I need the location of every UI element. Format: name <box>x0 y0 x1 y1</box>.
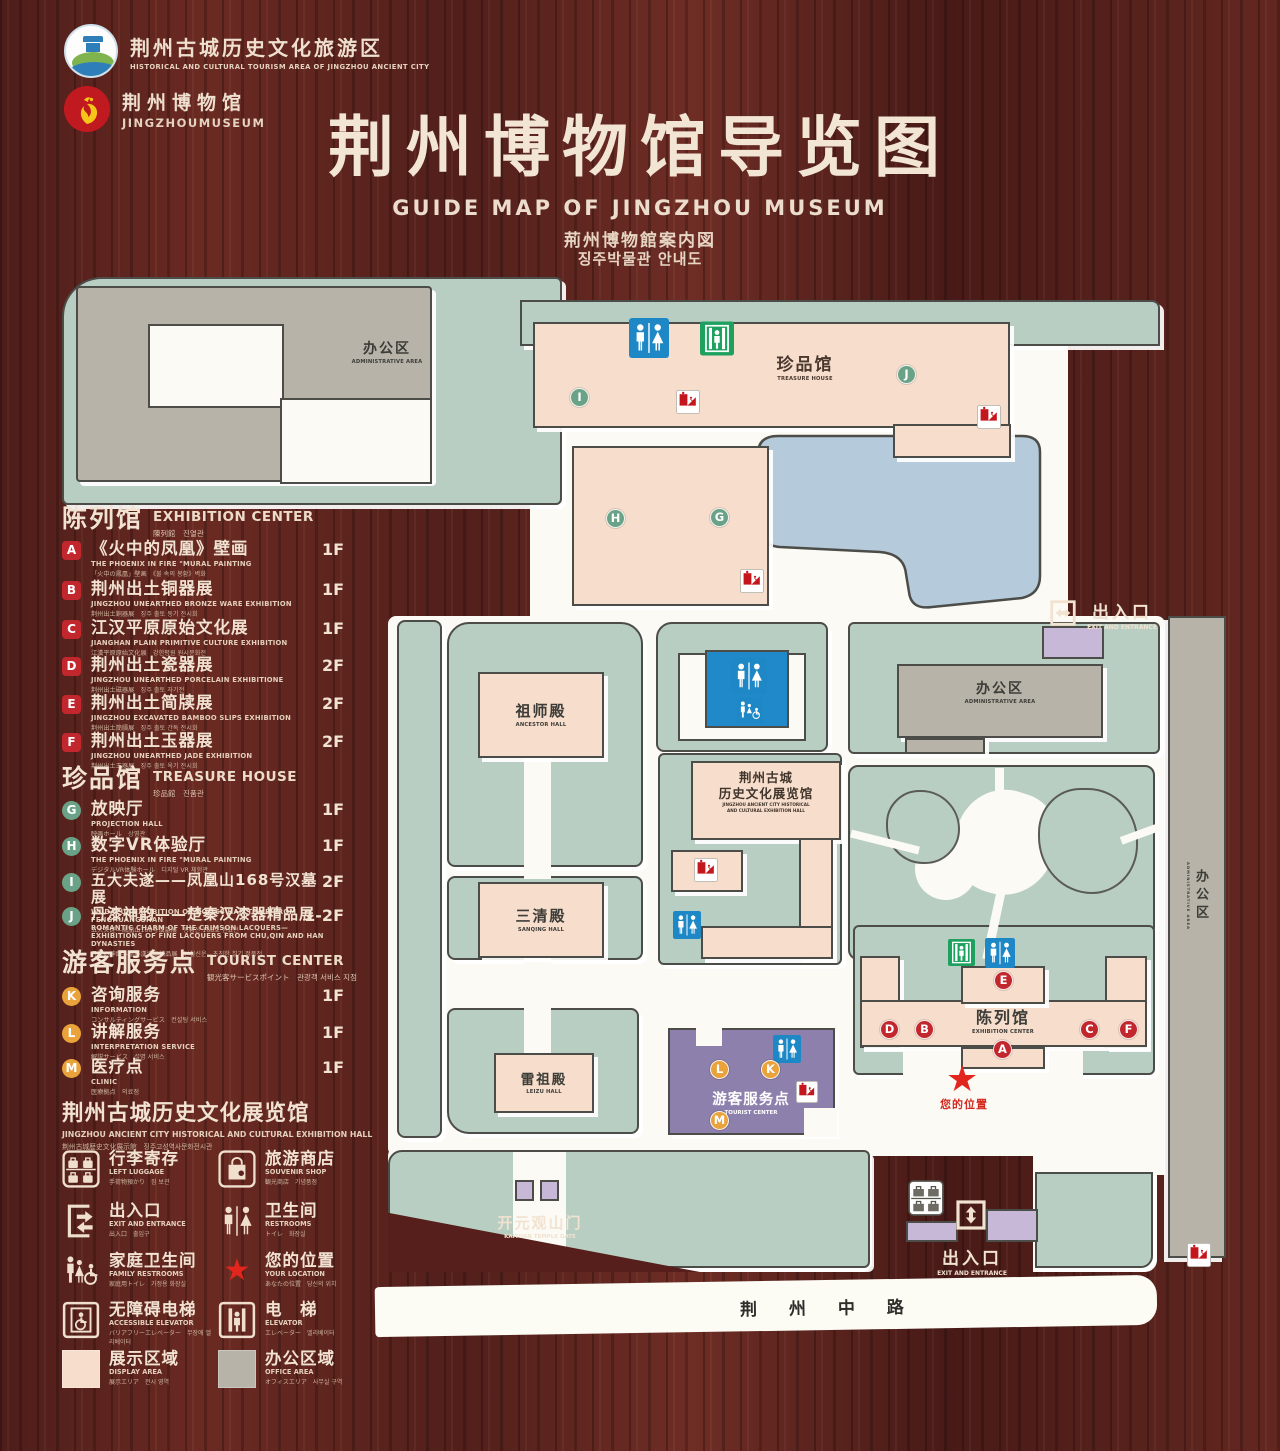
legend-item-K: K 咨询服务INFORMATIONコンサルティングサービス 컨설팅 서비스 1F <box>62 986 362 1024</box>
legend-item-E: E 荆州出土简牍展JINGZHOU EXCAVATED BAMBOO SLIPS… <box>62 694 362 732</box>
map-marker-H: H <box>606 509 625 528</box>
page-subtitle-ko: 징주박물관 안내도 <box>0 248 1280 269</box>
sanqing-hall-label: 三清殿SANQING HALL <box>480 905 602 933</box>
road-jingzhou-middle: 荆 州 中 路 <box>375 1275 1158 1337</box>
map-marker-K: K <box>761 1060 780 1079</box>
legend-elevator: 电 梯ELEVATORエレベーター 엘리베이터 <box>218 1301 368 1339</box>
temple-axis-path <box>524 757 551 879</box>
map-marker-J: J <box>897 365 916 384</box>
legend-item-G: G 放映厅PROJECTION HALL映画ホール 상영관 1F <box>62 800 362 838</box>
marker-C: C <box>62 620 81 639</box>
escalator-icon <box>977 405 1001 429</box>
legend-your-location: ★ 您的位置YOUR LOCATIONあなたの位置 당신의 위치 <box>218 1252 368 1290</box>
page-subtitle-en: GUIDE MAP OF JINGZHOU MUSEUM <box>0 196 1280 220</box>
map-marker-E: E <box>994 971 1013 990</box>
accessible-elevator-icon <box>62 1301 100 1339</box>
gate-pillar <box>540 1180 559 1201</box>
elevator-icon <box>218 1301 256 1339</box>
tourism-area-logo: 荆州古城历史文化旅游区 HISTORICAL AND CULTURAL TOUR… <box>64 24 429 78</box>
tourism-area-logo-zh: 荆州古城历史文化旅游区 <box>130 32 429 61</box>
elevator-icon <box>700 319 734 358</box>
family-restroom-icon <box>62 1252 100 1290</box>
legend-section-exhibition-center: 陈列馆 EXHIBITION CENTER 陳列館 진열관 <box>62 506 372 539</box>
floor-badge: 1F <box>322 580 344 599</box>
escalator-icon <box>676 390 700 414</box>
lake <box>750 428 1050 628</box>
admin-strip-label: 办公区 ADMINISTRATIVE AREA <box>1186 862 1210 930</box>
map-marker-F: F <box>1119 1020 1138 1039</box>
exit-northeast-label: 出入口EXIT AND ENTRANCE <box>1082 598 1162 631</box>
legend-family-restrooms: 家庭卫生间FAMILY RESTROOMS家庭用トイレ 가정용 화장실 <box>62 1252 212 1290</box>
guide-map-poster: { "header": { "logo1": {"zh": "荆州古城历史文化旅… <box>0 0 1280 1451</box>
display-area-swatch <box>62 1350 100 1388</box>
grounds-southeast-block <box>1035 1172 1153 1268</box>
floor-badge: 1F <box>322 1023 344 1042</box>
ancestor-hall-label: 祖师殿ANCESTOR HALL <box>480 700 602 728</box>
legend-section-tourist-center: 游客服务点 TOURIST CENTER 観光客サービスポイント 관광객 서비스… <box>62 950 372 983</box>
exit-south-label: 出入口EXIT AND ENTRANCE <box>917 1244 1027 1277</box>
marker-D: D <box>62 657 81 676</box>
admin-northwest-label: 办公区ADMINISTRATIVE AREA <box>322 338 452 365</box>
restroom-icon <box>628 318 670 358</box>
floor-badge: 1F <box>322 540 344 559</box>
marker-E: E <box>62 695 81 714</box>
your-location-label: 您的位置 <box>930 1096 998 1112</box>
escalator-icon <box>694 858 718 882</box>
building-admin-east-tab <box>905 738 985 754</box>
floor-badge: 2F <box>322 872 344 891</box>
restroom-icon <box>773 1035 801 1063</box>
road-label: 荆 州 中 路 <box>740 1293 900 1321</box>
exit-entrance-icon <box>1050 600 1076 626</box>
building-admin-strip <box>1168 616 1226 1258</box>
map-marker-M: M <box>710 1111 729 1130</box>
legend-souvenir-shop: 旅游商店SOUVENIR SHOP観光商店 기념품점 <box>218 1150 368 1188</box>
escalator-icon <box>796 1081 818 1103</box>
left-luggage-icon <box>908 1180 944 1216</box>
left-luggage-icon <box>62 1150 100 1188</box>
floor-badge: 1F <box>322 619 344 638</box>
building-jz-hall-south-bar <box>701 926 833 959</box>
map-marker-L: L <box>710 1060 729 1079</box>
legend-item-D: D 荆州出土瓷器展JINGZHOU UNEARTHED PORCELAIN EX… <box>62 656 362 694</box>
floor-badge: 1F <box>322 800 344 819</box>
restroom-icon <box>731 658 767 694</box>
leizu-hall-label: 雷祖殿LEIZU HALL <box>490 1068 598 1095</box>
your-location-star-icon: ★ <box>946 1062 978 1098</box>
floor-badge: 1F <box>322 1058 344 1077</box>
courtyard <box>696 1026 722 1046</box>
souvenir-shop-icon <box>218 1150 256 1188</box>
tourism-area-logo-icon <box>64 24 118 78</box>
grounds-west-strip <box>397 620 442 1138</box>
exit-entrance-icon <box>956 1200 986 1230</box>
restroom-icon <box>218 1202 256 1240</box>
temple-axis-path <box>524 956 551 1012</box>
map-marker-I: I <box>570 388 589 407</box>
floor-badge: 1F <box>322 836 344 855</box>
escalator-icon <box>1187 1243 1211 1267</box>
garden-path <box>995 768 1004 798</box>
restroom-icon <box>985 938 1015 968</box>
floor-badge: 2F <box>322 732 344 751</box>
marker-I: I <box>62 873 81 892</box>
marker-L: L <box>62 1024 81 1043</box>
elevator-icon <box>948 938 975 967</box>
legend-item-H: H 数字VR体验厅THE PHOENIX IN FIRE "MURAL PAIN… <box>62 836 362 874</box>
building-treasure-house-wing-east <box>893 424 1011 458</box>
legend-item-B: B 荆州出土铜器展JINGZHOU UNEARTHED BRONZE WARE … <box>62 580 362 618</box>
legend-accessible-elevator: 无障碍电梯ACCESSIBLE ELEVATORバリアフリーエレベーター 무장애… <box>62 1301 212 1346</box>
map-marker-G: G <box>710 508 729 527</box>
jz-hall-label: 荆州古城 历史文化展览馆 JINGZHOU ANCIENT CITY HISTO… <box>693 770 839 813</box>
building-gatehouse-south-east <box>986 1209 1038 1242</box>
admin-east-label: 办公区ADMINISTRATIVE AREA <box>940 678 1060 705</box>
courtyard <box>280 398 432 484</box>
legend-hall-note: 荆州古城历史文化展览馆 JINGZHOU ANCIENT CITY HISTOR… <box>62 1096 392 1151</box>
office-area-swatch <box>218 1350 256 1388</box>
legend-left-luggage: 行李寄存LEFT LUGGAGE手荷物預かり 짐 보관 <box>62 1150 212 1188</box>
page-title: 荆州博物馆导览图 <box>0 94 1280 190</box>
family-restroom-icon <box>737 697 763 723</box>
floor-badge: 1-2F <box>304 906 344 925</box>
legend-display-area: 展示区域DISPLAY AREA展示エリア 전시 영역 <box>62 1350 212 1388</box>
marker-F: F <box>62 733 81 752</box>
courtyard <box>148 324 284 408</box>
exit-entrance-icon <box>62 1202 100 1240</box>
marker-M: M <box>62 1059 81 1078</box>
treasure-house-label: 珍品馆TREASURE HOUSE <box>740 350 870 382</box>
legend-item-L: L 讲解服务INTERPRETATION SERVICE解説サービス 설명 서비… <box>62 1023 362 1061</box>
map-marker-A: A <box>993 1040 1012 1059</box>
garden-island-west <box>886 790 960 864</box>
escalator-icon <box>740 569 764 593</box>
floor-badge: 2F <box>322 694 344 713</box>
map-marker-C: C <box>1080 1020 1099 1039</box>
legend-exit-entrance: 出入口EXIT AND ENTRANCE出入口 출입구 <box>62 1202 212 1240</box>
map-marker-B: B <box>915 1020 934 1039</box>
legend-office-area: 办公区域OFFICE AREAオフィスエリア 사무실 구역 <box>218 1350 368 1388</box>
tourism-area-logo-en: HISTORICAL AND CULTURAL TOURISM AREA OF … <box>130 63 429 71</box>
legend-item-A: A 《火中的凤凰》壁画THE PHOENIX IN FIRE "MURAL PA… <box>62 540 362 578</box>
marker-B: B <box>62 581 81 600</box>
restroom-icon <box>673 908 701 942</box>
marker-G: G <box>62 801 81 820</box>
legend-restrooms: 卫生间RESTROOMSトイレ 화장실 <box>218 1202 368 1240</box>
legend-item-C: C 江汉平原原始文化展JIANGHAN PLAIN PRIMITIVE CULT… <box>62 619 362 657</box>
marker-K: K <box>62 987 81 1006</box>
legend-item-M: M 医疗点CLINIC医療拠点 의료점 1F <box>62 1058 362 1096</box>
legend-section-treasure-house: 珍品馆 TREASURE HOUSE 珍品館 진품관 <box>62 766 372 799</box>
your-location-star-icon: ★ <box>218 1252 256 1290</box>
marker-A: A <box>62 541 81 560</box>
temple-axis-path <box>524 1010 551 1056</box>
marker-J: J <box>62 907 81 926</box>
kaiyuan-gate-label: 开元观山门KAIYUAN TEMPLE GATE <box>483 1212 597 1240</box>
tourist-center-label: 游客服务点TOURIST CENTER <box>690 1088 812 1116</box>
map-marker-D: D <box>880 1020 899 1039</box>
gate-pillar <box>515 1180 534 1201</box>
floor-badge: 1F <box>322 986 344 1005</box>
floor-badge: 2F <box>322 656 344 675</box>
exhibition-center-label: 陈列馆EXHIBITION CENTER <box>938 1004 1068 1035</box>
marker-H: H <box>62 837 81 856</box>
building-gatehouse-south-west <box>906 1221 958 1242</box>
